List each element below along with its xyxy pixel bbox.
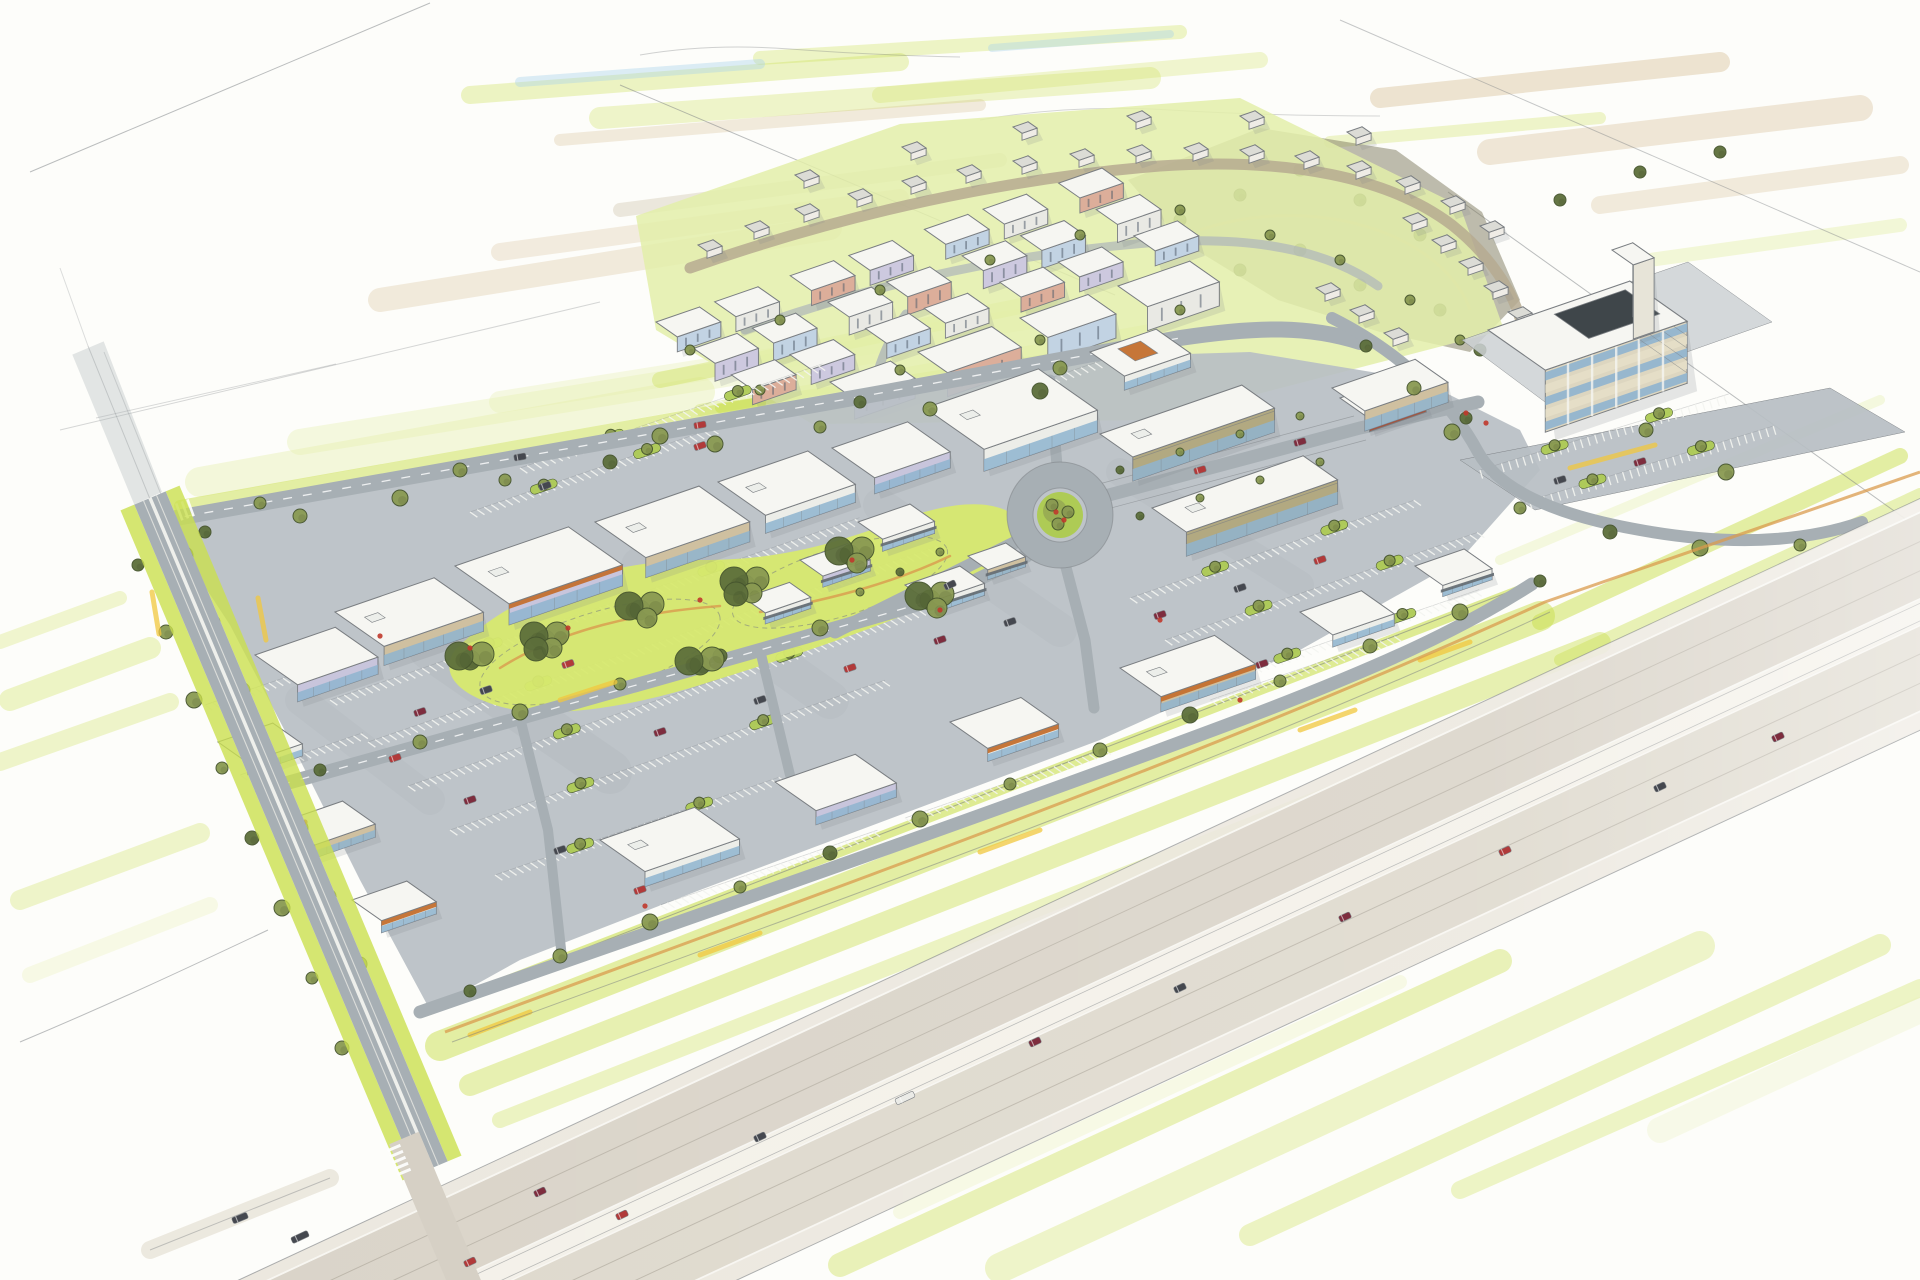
tree [1176,448,1184,456]
tree [927,598,947,618]
tree-shade [859,591,863,595]
tree [775,315,785,325]
tree [1397,609,1408,620]
tree [1587,474,1598,485]
tree-shade [518,710,527,719]
tree [1452,604,1468,620]
tree-shade [1450,430,1459,439]
flower-accent [1157,617,1162,622]
tree-shade [648,920,657,929]
tree-shade [319,769,326,776]
tree-shade [1412,386,1420,394]
tree [1405,295,1415,305]
tree-shade [646,448,652,454]
tree-shade [456,653,471,668]
tree [199,526,211,538]
tree [1335,255,1345,265]
tree-shade [1269,234,1275,240]
tree [413,735,427,749]
tree [1514,502,1526,514]
tree-shade [558,954,566,962]
tree-shade [1368,644,1376,652]
tree-shade [1279,680,1286,687]
tree [1175,305,1185,315]
tree-shade [859,401,866,408]
tree-shade [928,407,936,415]
tree-shade [1639,171,1646,178]
tree-shade [1239,433,1243,437]
tree [1329,520,1340,531]
tree-shade [686,658,701,673]
tree-shade [398,496,407,505]
tree-shade [550,646,561,657]
aerial-rendering-canvas [0,0,1920,1280]
tree [254,497,266,509]
tree-shade [1058,366,1066,374]
tree-shade [1188,713,1197,722]
tree [732,385,743,396]
tree-shade [579,842,585,848]
tree [707,436,723,452]
tree-shade [418,740,426,748]
tree [854,396,866,408]
tree-shade [1700,445,1706,451]
tree-shade [1401,613,1407,619]
tree [1634,166,1646,178]
tree [896,568,904,576]
tree-shade [918,817,927,826]
tree-shade [762,719,768,725]
tree [1075,230,1085,240]
tree [561,724,572,735]
tree-shade [1388,559,1394,565]
tree [1236,430,1244,438]
tree [637,608,657,628]
tree [499,474,511,486]
tree [1175,205,1185,215]
tree-shade [819,426,826,433]
tree-shade [818,626,827,635]
tree [985,255,995,265]
tree [1407,381,1421,395]
tree-shade [579,782,585,788]
tree [652,428,668,444]
tree-shade [828,851,836,859]
flower-accent [1463,410,1468,415]
tree [603,455,617,469]
tree [1210,561,1221,572]
tree-shade [164,630,172,638]
tree-shade [733,591,746,604]
tree-shade [709,656,722,669]
tree [895,365,905,375]
tree [524,637,548,661]
tree [1549,440,1560,451]
tree-shade [1539,580,1546,587]
tree-shade [1067,511,1074,518]
roundabout [1007,462,1113,568]
tree [1654,408,1665,419]
tree [293,509,307,523]
tree [1554,194,1566,206]
tree-shade [1179,451,1183,455]
tree [575,838,586,849]
tree-shade [259,502,266,509]
tree-shade [1339,259,1345,265]
tree [812,620,828,636]
flower-accent [937,607,942,612]
tree [1265,230,1275,240]
tree [734,881,746,893]
tree-shade [658,434,667,443]
tree-shade [1799,544,1806,551]
tree [1363,639,1377,653]
tree-shade [1658,412,1664,418]
tree [314,764,326,776]
tree-shade [1333,524,1339,530]
tree [675,647,703,675]
tree [1004,778,1016,790]
tree-shade [479,651,492,664]
tree-shade [1724,470,1733,479]
tree-shade [939,551,943,555]
tree [453,463,467,477]
tree-shade [713,442,722,451]
tree [1093,743,1107,757]
tree [814,421,826,433]
tree [936,548,944,556]
tree-shade [469,990,476,997]
flower-accent [642,903,647,908]
tree-shade [1259,479,1263,483]
tree-shade [1079,234,1085,240]
tree [470,642,494,666]
tree [1196,494,1204,502]
tree [685,345,695,355]
flower-accent [697,597,702,602]
tree-shade [1199,497,1203,501]
tree [575,778,586,789]
tree [1274,675,1286,687]
tree [1296,412,1304,420]
tree [1639,423,1653,437]
tree [1253,600,1264,611]
flower-accent [565,625,570,630]
tree-shade [1257,604,1263,610]
tree [1444,424,1460,440]
flower-accent [1053,509,1058,514]
tree [1256,476,1264,484]
tree-shade [565,728,571,734]
tree-shade [1409,299,1415,305]
tree-shade [698,801,704,807]
tree-shade [1465,417,1472,424]
tree [1316,458,1324,466]
tree [1046,499,1058,511]
tree-shade [779,319,785,325]
tree-shade [1214,565,1220,571]
tree-shade [504,479,511,486]
tree-shade [250,836,258,844]
flower-accent [467,645,472,650]
tree [1603,525,1617,539]
tree-shade [1365,345,1372,352]
tree [1116,466,1124,474]
tree-shade [739,886,746,893]
tree-shade [689,349,695,355]
tree-shade [1591,478,1597,484]
tree [847,553,867,573]
tree-shade [1458,610,1467,619]
tree-shade [608,460,616,468]
flower-accent [1061,517,1066,522]
tree-shade [1519,507,1526,514]
tree-shade [533,646,546,659]
tree-shade [1038,389,1047,398]
flower-accent [1483,420,1488,425]
tree [553,949,567,963]
tree [1360,340,1372,352]
tree-shade [1051,504,1058,511]
tree [912,811,928,827]
tree [1062,506,1074,518]
tree [1718,464,1734,480]
tree-shade [1299,415,1303,419]
tree-shade [1553,444,1559,450]
tree-shade [879,289,885,295]
tree [1695,441,1706,452]
tree [512,704,528,720]
tree [1035,335,1045,345]
tree [1053,361,1067,375]
tree-shade [899,571,903,575]
tree-shade [1559,199,1566,206]
tree-shade [221,767,228,774]
tree [1032,383,1048,399]
tree-shade [137,564,144,571]
tree [642,914,658,930]
tree-shade [1179,209,1185,215]
tree-shade [204,531,211,538]
tree-shade [899,369,905,375]
tree-shade [1608,530,1616,538]
tree [1714,146,1726,158]
tree-shade [458,468,466,476]
flower-accent [377,633,382,638]
tree [1534,575,1546,587]
flower-accent [849,557,854,562]
tree-shade [989,259,995,265]
tree [1282,648,1293,659]
tree [1384,555,1395,566]
tree-shade [750,591,761,602]
tree-shade [1009,783,1016,790]
tree [464,985,476,997]
tree-shade [736,390,742,396]
tree [923,402,937,416]
tree-shade [1286,652,1292,658]
tree [216,762,228,774]
tree-shade [619,683,626,690]
tree-shade [1119,469,1123,473]
tree [392,490,408,506]
tree-shade [280,906,289,915]
tree-shade [1179,309,1185,315]
tree-shade [855,561,866,572]
tree-shade [298,514,306,522]
tree-shade [1098,748,1106,756]
tree-shade [311,977,318,984]
tree-shade [1719,151,1726,158]
tree [642,444,653,455]
tree-shade [1057,523,1064,530]
tree-shade [192,698,201,707]
building-front-wall [1633,258,1654,339]
tree [1136,512,1144,520]
tree-shade [645,616,656,627]
tree-shade [1319,461,1323,465]
tree [1182,707,1198,723]
tree-shade [1039,339,1045,345]
tree [1794,539,1806,551]
tree-shade [1644,428,1652,436]
tree [700,647,724,671]
tree [856,588,864,596]
tree [694,797,705,808]
tree-shade [1139,515,1143,519]
flower-accent [1237,697,1242,702]
rendering-frame [0,0,1920,1280]
tree [724,582,748,606]
tree [823,846,837,860]
tree [875,285,885,295]
tree [758,715,769,726]
